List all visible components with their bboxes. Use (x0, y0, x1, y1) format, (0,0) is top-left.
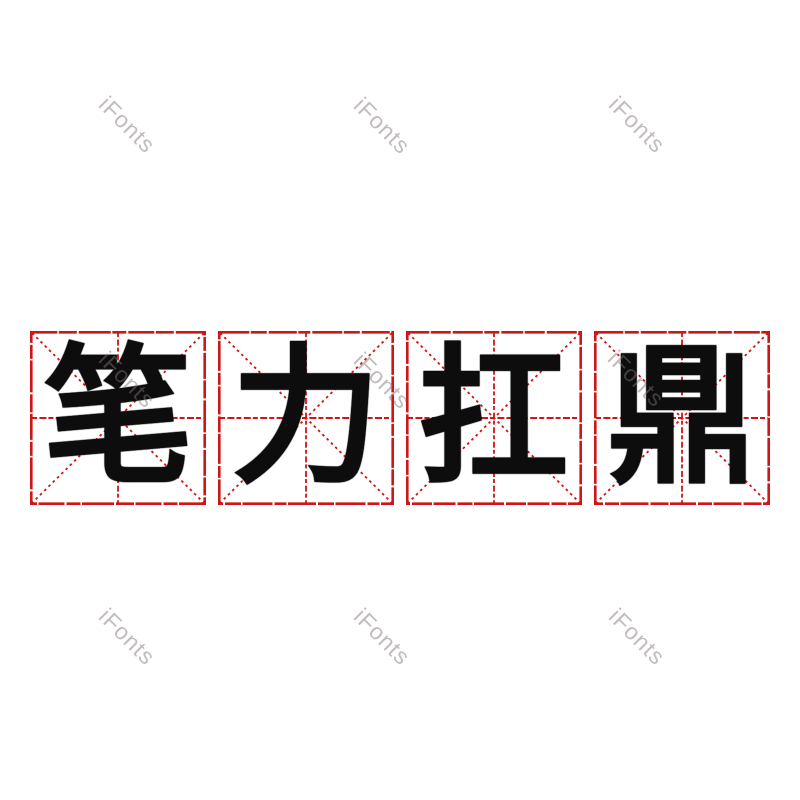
character-cell-1: 笔 (30, 331, 206, 505)
ifonts-watermark: iFonts (603, 91, 671, 159)
ifonts-watermark: iFonts (93, 91, 161, 159)
character-glyph: 扛 (406, 331, 582, 505)
ifonts-watermark: iFonts (348, 603, 416, 671)
ifonts-watermark: iFonts (348, 92, 416, 160)
ifonts-watermark: iFonts (603, 603, 671, 671)
character-glyph: 笔 (30, 331, 206, 505)
character-glyph: 鼎 (594, 331, 770, 505)
phrase-row: 笔 力 扛 (30, 331, 770, 505)
ifonts-watermark: iFonts (93, 603, 161, 671)
character-cell-2: 力 (218, 331, 394, 505)
font-preview-canvas: 笔 力 扛 (0, 0, 800, 800)
character-cell-4: 鼎 (594, 331, 770, 505)
character-cell-3: 扛 (406, 331, 582, 505)
character-glyph: 力 (218, 331, 394, 505)
